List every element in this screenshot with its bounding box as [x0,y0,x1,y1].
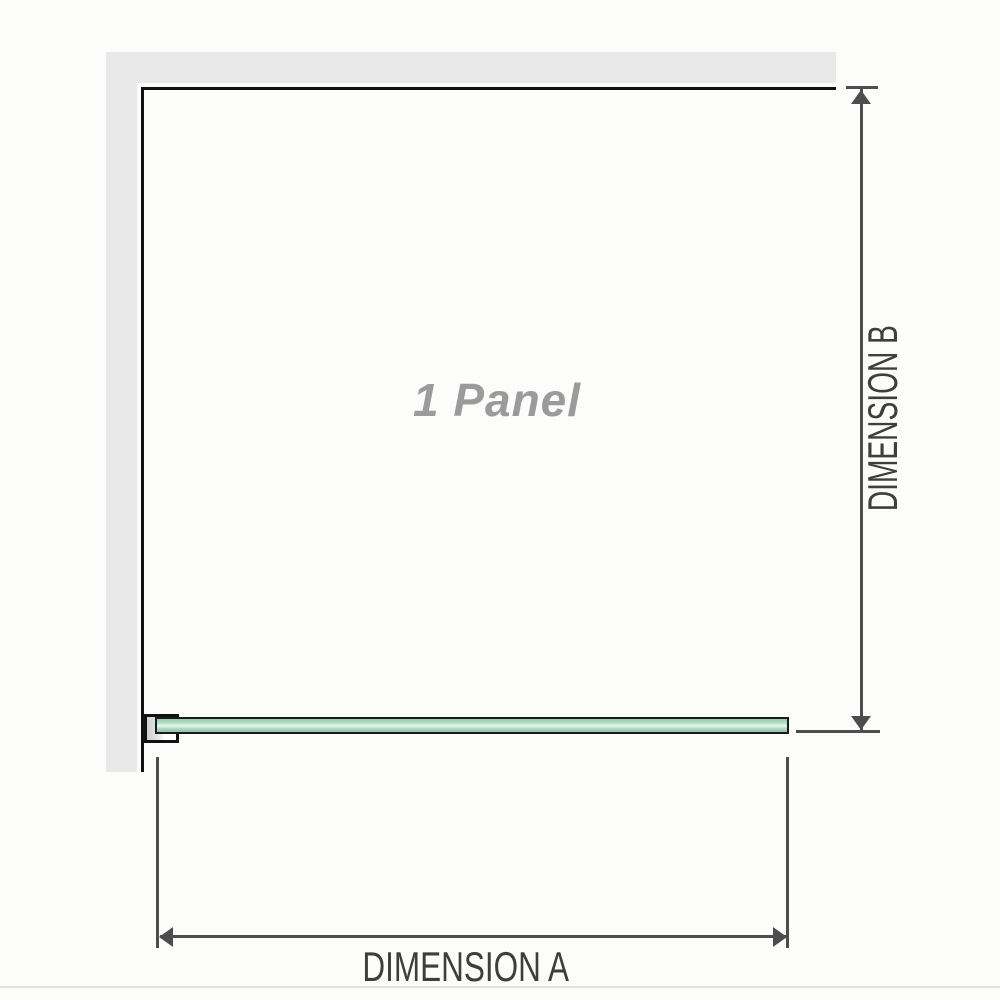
dimension-b-label: DIMENSION B [859,325,907,511]
page-edge-line [0,986,1000,988]
shower-panel-diagram: 1 Panel DIMENSION B DIMENSION A [0,0,1000,1000]
dimension-a-line [160,935,787,938]
arrow-down-icon [851,716,871,730]
wall-left [106,52,137,772]
dimension-a-label: DIMENSION A [363,943,570,991]
panel-outline-top-edge [141,87,836,90]
panel-count-label: 1 Panel [413,373,581,427]
panel-outline-left-edge [141,87,144,772]
dimension-a-extension-right [786,757,789,948]
arrow-up-icon [851,90,871,104]
dimension-a-extension-left [156,757,159,948]
wall-top [106,52,836,83]
arrow-right-icon [773,927,787,947]
glass-panel [155,717,789,734]
dimension-b-tick-bottom [796,730,880,733]
arrow-left-icon [159,927,173,947]
